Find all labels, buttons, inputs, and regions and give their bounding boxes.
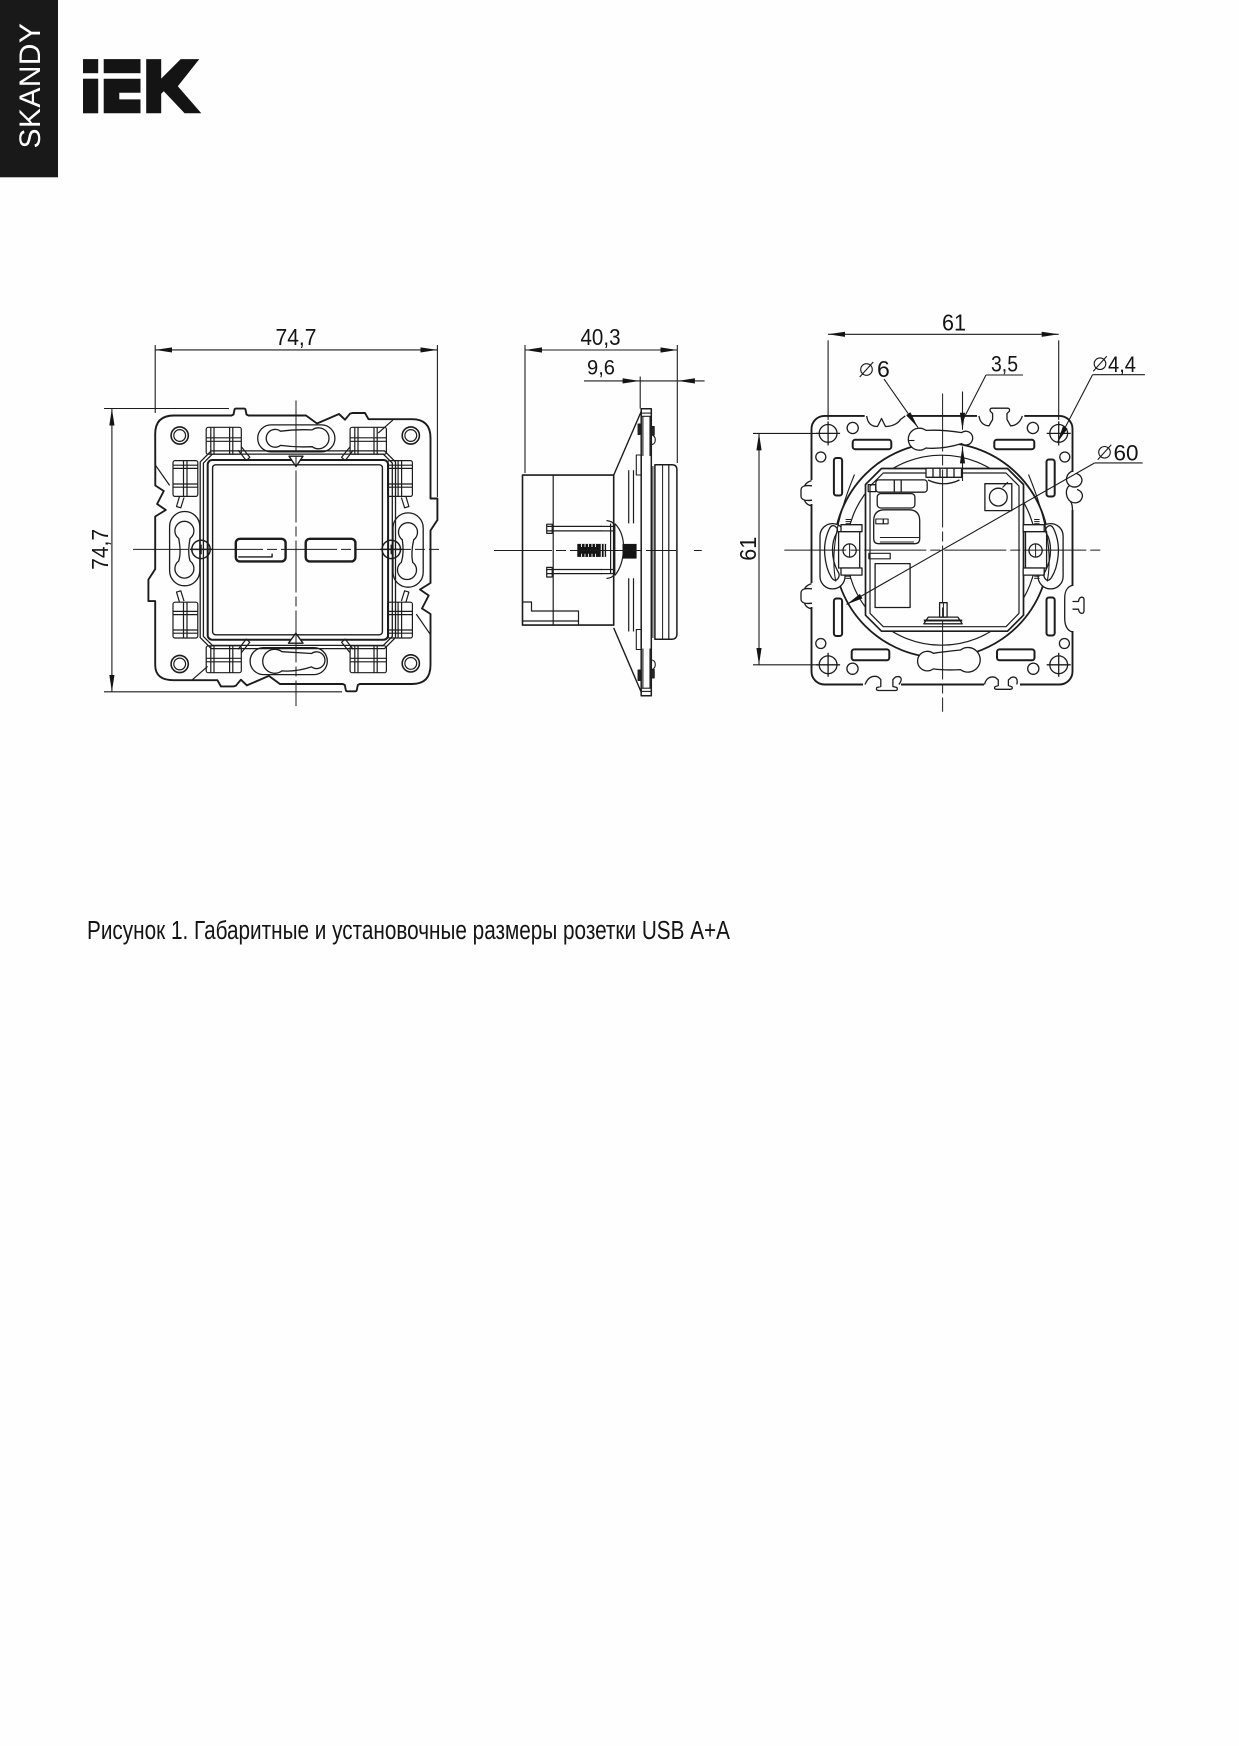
svg-text:Рисунок 1. Габаритные и устано: Рисунок 1. Габаритные и установочные раз… <box>87 917 730 945</box>
svg-text:3,5: 3,5 <box>991 352 1018 377</box>
svg-text:74,7: 74,7 <box>276 324 317 350</box>
svg-text:SKANDY: SKANDY <box>14 23 47 149</box>
svg-text:61: 61 <box>942 310 966 336</box>
svg-text:6: 6 <box>877 356 890 382</box>
svg-text:60: 60 <box>1114 440 1139 465</box>
svg-text:40,3: 40,3 <box>581 324 621 350</box>
svg-text:9,6: 9,6 <box>587 356 615 379</box>
svg-text:4,4: 4,4 <box>1108 352 1136 377</box>
svg-text:74,7: 74,7 <box>87 529 113 570</box>
svg-text:61: 61 <box>735 537 761 561</box>
